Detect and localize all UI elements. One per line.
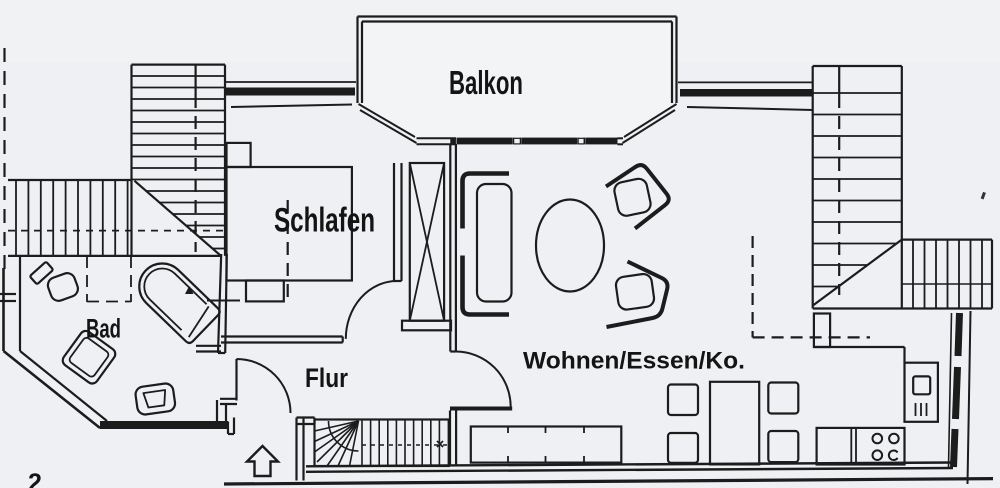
svg-text:Balkon: Balkon	[449, 64, 523, 101]
svg-text:Schlafen: Schlafen	[274, 202, 375, 240]
svg-text:Bad: Bad	[86, 314, 121, 344]
svg-text:2: 2	[28, 469, 42, 488]
svg-text:Flur: Flur	[305, 363, 348, 393]
svg-text:Wohnen/Essen/Ko.: Wohnen/Essen/Ko.	[523, 348, 745, 375]
